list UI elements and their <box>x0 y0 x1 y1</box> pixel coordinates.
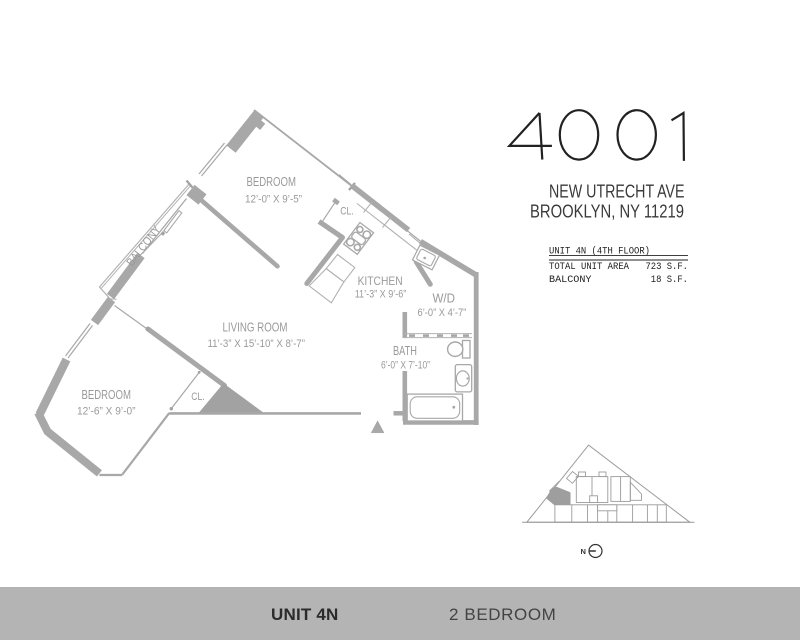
svg-text:N: N <box>580 547 585 556</box>
svg-text:723 S.F.: 723 S.F. <box>646 262 689 273</box>
svg-text:BROOKLYN, NY 11219: BROOKLYN, NY 11219 <box>530 201 684 221</box>
svg-text:6’-0” X 4’-7”: 6’-0” X 4’-7” <box>418 307 467 319</box>
svg-text:TOTAL UNIT AREA: TOTAL UNIT AREA <box>549 262 629 273</box>
svg-text:KITCHEN: KITCHEN <box>358 274 403 288</box>
svg-text:W/D: W/D <box>432 292 455 306</box>
svg-text:NEW UTRECHT AVE: NEW UTRECHT AVE <box>549 181 685 201</box>
svg-text:11’-3” X 15’-10” X 8’-7”: 11’-3” X 15’-10” X 8’-7” <box>207 338 305 350</box>
svg-text:BEDROOM: BEDROOM <box>81 388 131 402</box>
svg-text:LIVING ROOM: LIVING ROOM <box>223 321 288 335</box>
svg-text:CL.: CL. <box>191 391 205 403</box>
svg-text:BALCONY: BALCONY <box>549 275 592 286</box>
svg-text:CL.: CL. <box>340 206 354 218</box>
svg-text:BALCONY: BALCONY <box>125 224 164 269</box>
svg-text:11’-3” X 9’-6”: 11’-3” X 9’-6” <box>355 289 407 301</box>
svg-text:12’-6” X 9’-0”: 12’-6” X 9’-0” <box>77 405 136 417</box>
svg-text:BEDROOM: BEDROOM <box>246 175 296 189</box>
svg-text:BATH: BATH <box>393 344 417 358</box>
svg-text:18 S.F.: 18 S.F. <box>651 275 688 286</box>
svg-text:12’-0” X 9’-5”: 12’-0” X 9’-5” <box>245 194 302 206</box>
svg-text:6’-0” X 7’-10”: 6’-0” X 7’-10” <box>381 360 430 372</box>
